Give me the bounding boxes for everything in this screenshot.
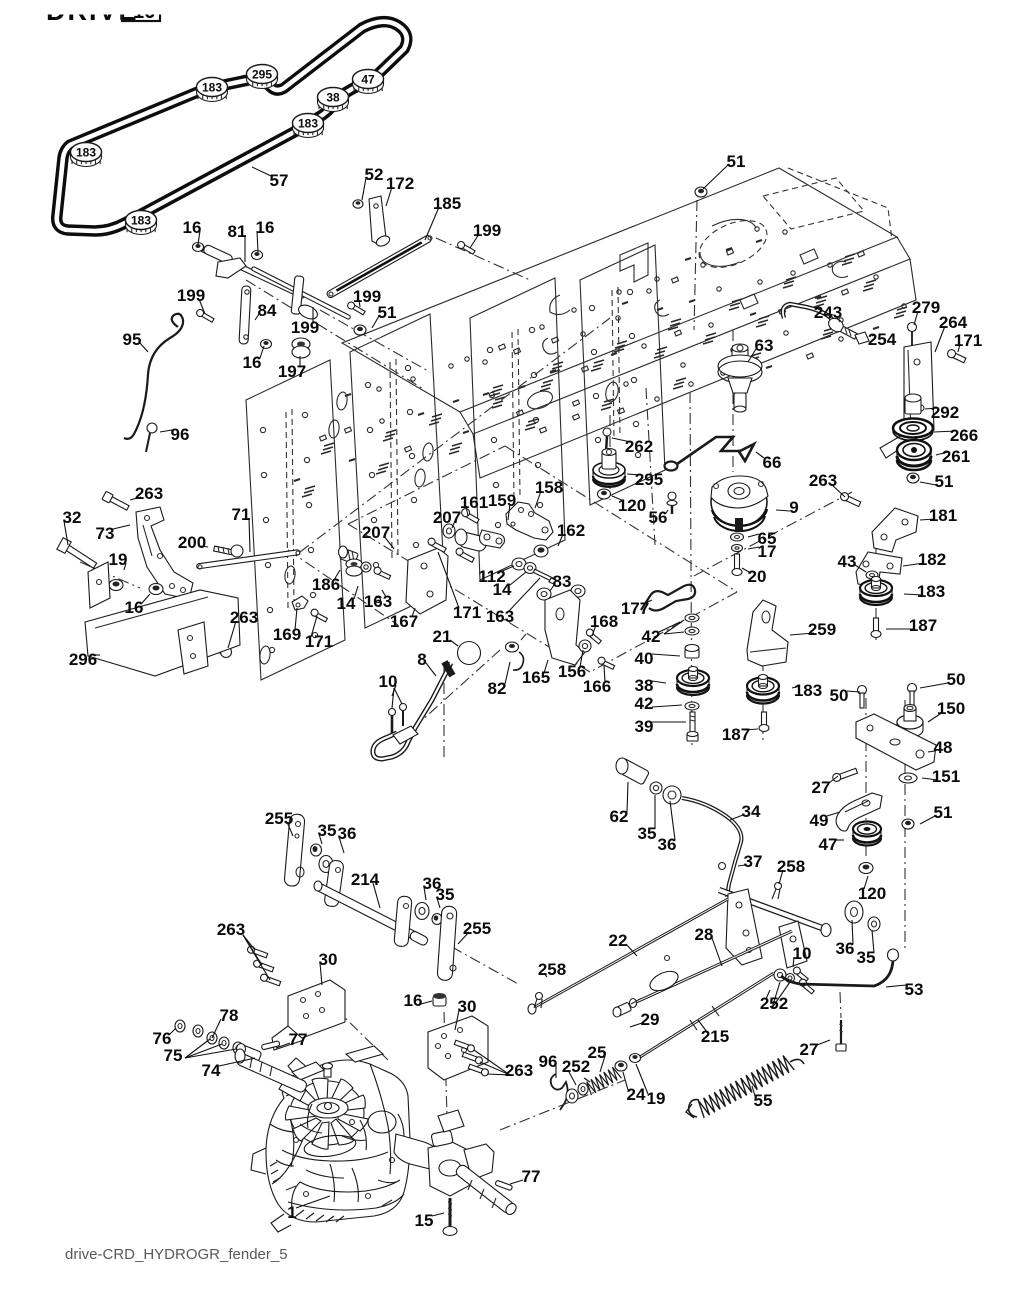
- svg-text:49: 49: [810, 811, 829, 830]
- svg-text:279: 279: [912, 298, 940, 317]
- svg-text:96: 96: [171, 425, 190, 444]
- svg-text:207: 207: [362, 523, 390, 542]
- svg-text:183: 183: [298, 117, 318, 131]
- svg-text:215: 215: [701, 1027, 729, 1046]
- svg-text:10: 10: [379, 672, 398, 691]
- svg-text:36: 36: [658, 835, 677, 854]
- svg-text:254: 254: [868, 330, 897, 349]
- svg-text:62: 62: [610, 807, 629, 826]
- svg-text:166: 166: [583, 677, 611, 696]
- svg-text:263: 263: [217, 920, 245, 939]
- svg-text:19: 19: [647, 1089, 666, 1108]
- svg-text:151: 151: [932, 767, 960, 786]
- svg-text:183: 183: [917, 582, 945, 601]
- svg-text:42: 42: [642, 627, 661, 646]
- svg-text:295: 295: [252, 68, 272, 82]
- svg-text:52: 52: [365, 165, 384, 184]
- svg-text:264: 264: [939, 313, 968, 332]
- svg-text:200: 200: [178, 533, 206, 552]
- svg-text:75: 75: [164, 1046, 183, 1065]
- svg-text:38: 38: [635, 676, 654, 695]
- svg-text:199: 199: [291, 318, 319, 337]
- svg-text:17: 17: [758, 542, 777, 561]
- svg-text:258: 258: [777, 857, 805, 876]
- svg-text:36: 36: [338, 824, 357, 843]
- svg-text:258: 258: [538, 960, 566, 979]
- svg-text:16: 16: [183, 218, 202, 237]
- svg-text:15: 15: [415, 1211, 434, 1230]
- svg-text:161: 161: [460, 493, 488, 512]
- svg-text:259: 259: [808, 620, 836, 639]
- svg-text:63: 63: [755, 336, 774, 355]
- svg-text:51: 51: [934, 803, 953, 822]
- svg-text:14: 14: [493, 580, 512, 599]
- svg-text:120: 120: [618, 496, 646, 515]
- svg-text:252: 252: [760, 994, 788, 1013]
- svg-text:51: 51: [727, 152, 746, 171]
- svg-text:182: 182: [918, 550, 946, 569]
- svg-text:169: 169: [273, 625, 301, 644]
- svg-text:77: 77: [522, 1167, 541, 1186]
- svg-text:29: 29: [641, 1010, 660, 1029]
- svg-text:50: 50: [830, 686, 849, 705]
- svg-text:10: 10: [793, 944, 812, 963]
- svg-text:78: 78: [220, 1006, 239, 1025]
- svg-text:183: 183: [131, 214, 151, 228]
- svg-text:262: 262: [625, 437, 653, 456]
- svg-text:83: 83: [553, 572, 572, 591]
- svg-text:95: 95: [123, 330, 142, 349]
- svg-text:16: 16: [243, 353, 262, 372]
- svg-text:263: 263: [809, 471, 837, 490]
- svg-text:185: 185: [433, 194, 461, 213]
- svg-text:43: 43: [838, 552, 857, 571]
- svg-text:34: 34: [742, 802, 761, 821]
- svg-text:16: 16: [256, 218, 275, 237]
- svg-text:295: 295: [635, 470, 663, 489]
- svg-text:53: 53: [905, 980, 924, 999]
- svg-text:252: 252: [562, 1057, 590, 1076]
- svg-text:163: 163: [364, 592, 392, 611]
- svg-text:84: 84: [258, 301, 277, 320]
- svg-text:35: 35: [638, 824, 657, 843]
- svg-text:19: 19: [109, 550, 128, 569]
- svg-text:56: 56: [649, 508, 668, 527]
- svg-text:27: 27: [812, 778, 831, 797]
- svg-text:55: 55: [754, 1091, 773, 1110]
- svg-text:197: 197: [278, 362, 306, 381]
- svg-text:199: 199: [177, 286, 205, 305]
- svg-text:96: 96: [539, 1052, 558, 1071]
- svg-text:36: 36: [836, 939, 855, 958]
- svg-text:28: 28: [695, 925, 714, 944]
- svg-text:183: 183: [794, 681, 822, 700]
- svg-text:159: 159: [488, 491, 516, 510]
- svg-text:71: 71: [232, 505, 251, 524]
- svg-text:263: 263: [135, 484, 163, 503]
- svg-text:drive-CRD_HYDROGR_fender_5: drive-CRD_HYDROGR_fender_5: [65, 1246, 288, 1263]
- svg-text:187: 187: [722, 725, 750, 744]
- svg-text:158: 158: [535, 478, 563, 497]
- svg-text:296: 296: [69, 650, 97, 669]
- svg-text:150: 150: [937, 699, 965, 718]
- svg-text:162: 162: [557, 521, 585, 540]
- svg-text:81: 81: [228, 222, 247, 241]
- svg-text:77: 77: [289, 1030, 308, 1049]
- svg-text:66: 66: [763, 453, 782, 472]
- svg-text:30: 30: [458, 997, 477, 1016]
- svg-text:8: 8: [417, 650, 426, 669]
- svg-text:255: 255: [463, 919, 491, 938]
- svg-text:24: 24: [627, 1085, 646, 1104]
- svg-text:16: 16: [125, 598, 144, 617]
- svg-text:51: 51: [935, 472, 954, 491]
- svg-text:263: 263: [230, 608, 258, 627]
- svg-text:38: 38: [326, 91, 340, 105]
- svg-text:120: 120: [858, 884, 886, 903]
- svg-text:171: 171: [954, 331, 982, 350]
- svg-text:57: 57: [270, 171, 289, 190]
- svg-text:73: 73: [96, 524, 115, 543]
- svg-text:20: 20: [748, 567, 767, 586]
- svg-text:183: 183: [76, 146, 96, 160]
- svg-text:35: 35: [318, 821, 337, 840]
- svg-text:181: 181: [929, 506, 957, 525]
- svg-text:261: 261: [942, 447, 970, 466]
- svg-text:74: 74: [202, 1061, 221, 1080]
- svg-text:207: 207: [433, 508, 461, 527]
- svg-text:47: 47: [361, 73, 375, 87]
- svg-text:16: 16: [404, 991, 423, 1010]
- svg-text:177: 177: [621, 599, 649, 618]
- svg-text:47: 47: [819, 835, 838, 854]
- svg-text:163: 163: [486, 607, 514, 626]
- svg-text:263: 263: [505, 1061, 533, 1080]
- svg-text:266: 266: [950, 426, 978, 445]
- svg-text:168: 168: [590, 612, 618, 631]
- svg-text:35: 35: [857, 948, 876, 967]
- svg-text:183: 183: [202, 81, 222, 95]
- svg-text:50: 50: [947, 670, 966, 689]
- svg-text:30: 30: [319, 950, 338, 969]
- svg-text:172: 172: [386, 174, 414, 193]
- svg-text:199: 199: [473, 221, 501, 240]
- svg-text:39: 39: [635, 717, 654, 736]
- svg-text:9: 9: [789, 498, 798, 517]
- svg-text:214: 214: [351, 870, 380, 889]
- svg-text:35: 35: [436, 885, 455, 904]
- svg-text:171: 171: [305, 632, 333, 651]
- svg-text:186: 186: [312, 575, 340, 594]
- svg-text:37: 37: [744, 852, 763, 871]
- svg-text:40: 40: [635, 649, 654, 668]
- svg-text:167: 167: [390, 612, 418, 631]
- svg-text:14: 14: [337, 594, 356, 613]
- svg-text:32: 32: [63, 508, 82, 527]
- svg-text:25: 25: [588, 1043, 607, 1062]
- svg-text:292: 292: [931, 403, 959, 422]
- svg-text:165: 165: [522, 668, 550, 687]
- svg-text:82: 82: [488, 679, 507, 698]
- svg-text:1: 1: [287, 1203, 296, 1222]
- svg-text:243: 243: [814, 303, 842, 322]
- svg-text:27: 27: [800, 1040, 819, 1059]
- svg-text:42: 42: [635, 694, 654, 713]
- svg-text:21: 21: [433, 627, 452, 646]
- svg-text:187: 187: [909, 616, 937, 635]
- svg-text:22: 22: [609, 931, 628, 950]
- svg-text:199: 199: [353, 287, 381, 306]
- svg-text:255: 255: [265, 809, 293, 828]
- svg-text:171: 171: [453, 603, 481, 622]
- svg-text:48: 48: [934, 738, 953, 757]
